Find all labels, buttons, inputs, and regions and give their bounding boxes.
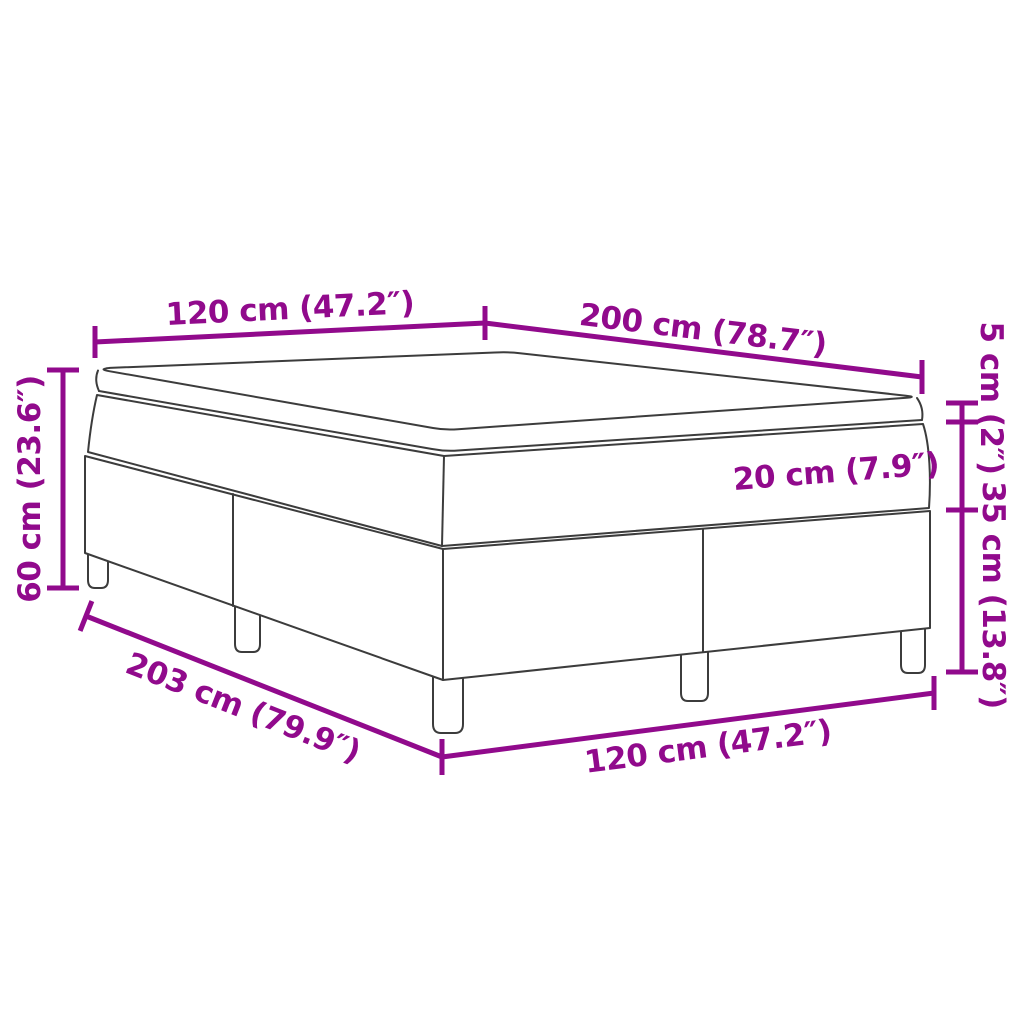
dim-label-top-length: 200 cm (78.7″): [577, 297, 828, 363]
bed-topper-right-edge: [917, 398, 922, 420]
bed-leg: [681, 648, 708, 701]
dim-label-total-height: 60 cm (23.6″): [12, 375, 48, 603]
dim-label-topper-height: 5 cm (2″): [973, 321, 1009, 474]
dim-label-base-height: 35 cm (13.8″): [975, 481, 1011, 709]
dim-label-base-length: 203 cm (79.9″): [121, 646, 366, 771]
bed-dimension-diagram: 120 cm (47.2″) 200 cm (78.7″) 5 cm (2″) …: [0, 0, 1024, 1024]
bed-topper-left-edge: [96, 371, 99, 392]
diagram-svg: 120 cm (47.2″) 200 cm (78.7″) 5 cm (2″) …: [0, 0, 1024, 1024]
